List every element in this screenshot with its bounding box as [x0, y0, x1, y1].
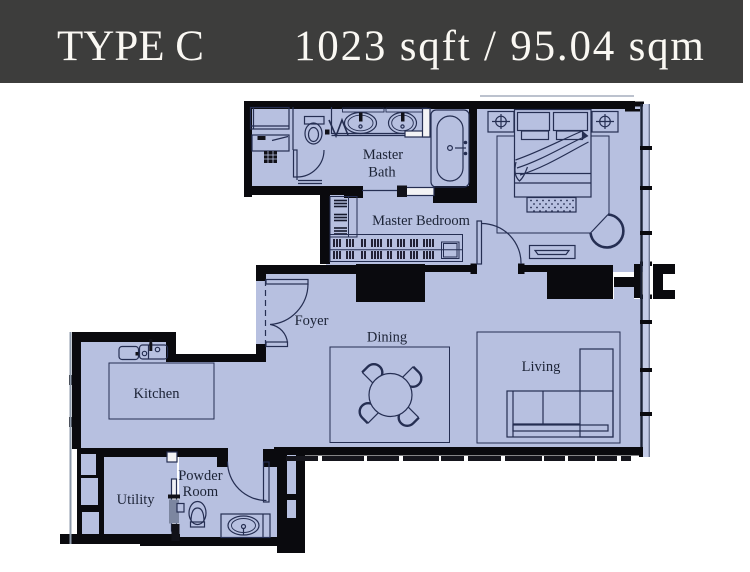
svg-text:1023 sqft / 95.04 sqm: 1023 sqft / 95.04 sqm	[294, 23, 706, 70]
svg-text:Bath: Bath	[368, 165, 396, 181]
svg-text:Foyer: Foyer	[295, 313, 329, 329]
svg-text:Utility: Utility	[117, 492, 156, 508]
svg-text:Kitchen: Kitchen	[134, 386, 181, 402]
svg-text:Living: Living	[522, 359, 561, 375]
svg-text:TYPE C: TYPE C	[57, 23, 204, 70]
svg-text:Powder: Powder	[178, 468, 222, 484]
svg-text:Master Bedroom: Master Bedroom	[372, 213, 471, 229]
svg-text:Dining: Dining	[367, 330, 407, 346]
svg-text:Room: Room	[183, 484, 219, 500]
svg-text:Master: Master	[363, 147, 403, 163]
